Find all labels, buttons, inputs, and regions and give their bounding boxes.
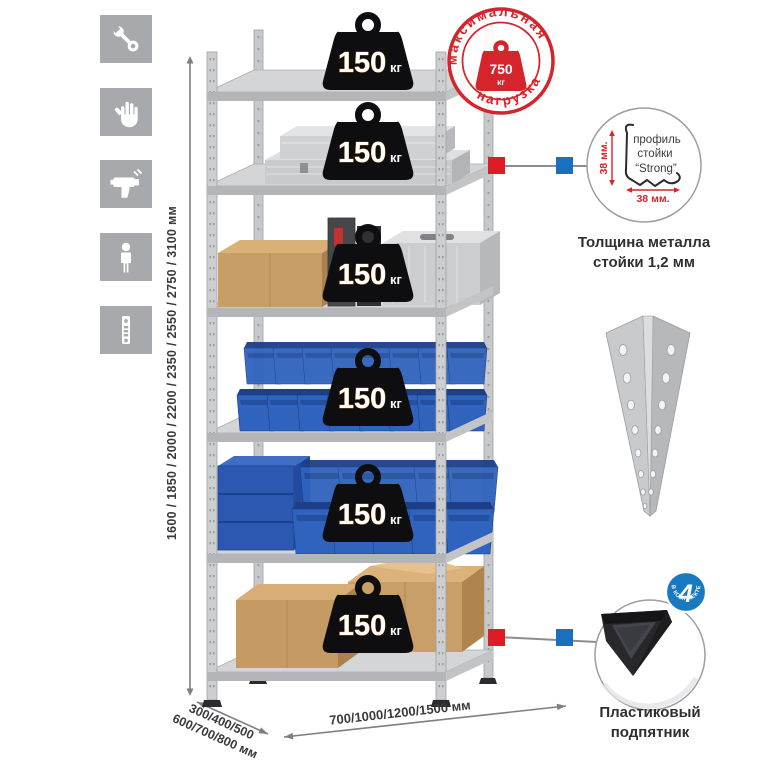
red-marker bbox=[488, 157, 505, 174]
angle-post-image bbox=[606, 316, 690, 516]
load-badge-1: 150 кг bbox=[323, 16, 414, 91]
profile-thickness-caption: Толщина металла стойки 1,2 мм bbox=[544, 233, 744, 272]
svg-text:150: 150 bbox=[338, 47, 386, 79]
callout-foot-connector bbox=[488, 629, 597, 646]
foot-caption-line1: Пластиковый bbox=[550, 703, 750, 723]
svg-text:750: 750 bbox=[489, 61, 513, 77]
thickness-caption-line2: стойки 1,2 мм bbox=[544, 253, 744, 273]
svg-text:стойки: стойки bbox=[637, 148, 672, 160]
max-load-stamp: максимальная нагрузка 750 кг bbox=[432, 0, 567, 122]
svg-text:150: 150 bbox=[338, 383, 386, 415]
svg-text:кг: кг bbox=[390, 623, 403, 638]
svg-text:38 мм.: 38 мм. bbox=[598, 141, 610, 174]
svg-text:кг: кг bbox=[390, 60, 403, 75]
foot-caption-line2: подпятник bbox=[550, 723, 750, 743]
svg-text:кг: кг bbox=[390, 272, 403, 287]
red-marker bbox=[488, 629, 505, 646]
svg-text:“Strong”: “Strong” bbox=[635, 163, 677, 175]
blue-marker bbox=[556, 157, 573, 174]
svg-text:кг: кг bbox=[390, 512, 403, 527]
profile-detail: 38 мм. 38 мм. профиль стойки “Strong” bbox=[587, 108, 701, 222]
svg-text:150: 150 bbox=[338, 499, 386, 531]
height-dimension-line bbox=[187, 56, 194, 696]
svg-text:кг: кг bbox=[497, 77, 505, 87]
svg-text:150: 150 bbox=[338, 259, 386, 291]
svg-text:150: 150 bbox=[338, 610, 386, 642]
svg-text:4: 4 bbox=[678, 580, 693, 608]
height-dimensions-label: 1600 / 1850 / 2000 / 2200 / 2350 / 2550 … bbox=[165, 48, 181, 698]
svg-text:кг: кг bbox=[390, 150, 403, 165]
rack-illustration: 150 кг 150 кг 150 кг 150 кг 150 кг 150 к… bbox=[0, 0, 765, 765]
svg-text:профиль: профиль bbox=[633, 134, 681, 146]
foot-detail: 4 в комплекте bbox=[595, 572, 706, 710]
included-count-badge: 4 в комплекте bbox=[666, 572, 706, 612]
thickness-caption-line1: Толщина металла bbox=[544, 233, 744, 253]
callout-profile-connector bbox=[488, 157, 589, 174]
plastic-foot-caption: Пластиковый подпятник bbox=[550, 703, 750, 742]
load-badge-2: 150 кг bbox=[323, 106, 414, 181]
blue-marker bbox=[556, 629, 573, 646]
svg-text:кг: кг bbox=[390, 396, 403, 411]
shelving-rack-infographic: 150 кг 150 кг 150 кг 150 кг 150 кг 150 к… bbox=[0, 0, 765, 765]
svg-text:38 мм.: 38 мм. bbox=[636, 193, 669, 205]
svg-text:150: 150 bbox=[338, 137, 386, 169]
